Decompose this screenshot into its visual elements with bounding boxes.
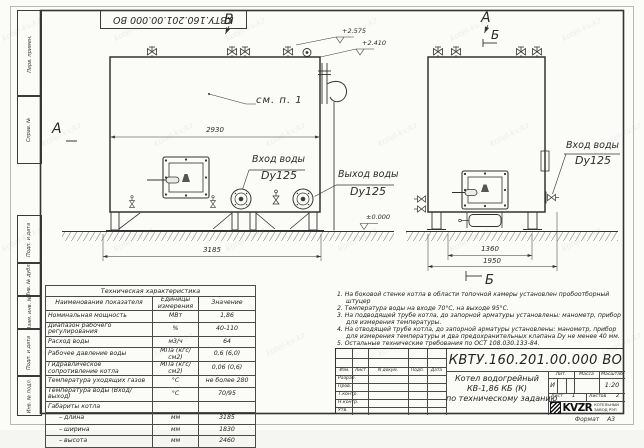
table-row: – высотамм2460: [46, 436, 256, 448]
valve-icon: [414, 206, 426, 212]
tb-doc-number: КВТУ.160.201.00.000 ВО: [446, 354, 625, 367]
elevation-mark-icon: [356, 49, 374, 55]
technical-notes: 1. На боковой стенке котла в области топ…: [337, 291, 628, 348]
elevation-mark-icon: [360, 224, 378, 230]
see-note-ref: см. п. 1: [256, 96, 303, 106]
logo-text: KVZR: [563, 402, 593, 414]
valve-icon: [414, 196, 426, 202]
tb-col-izm: Изм.: [337, 369, 352, 373]
valve-icon: [452, 47, 461, 57]
elevation-2410: +2.410: [362, 40, 386, 47]
outlet-label-front: Выход воды: [338, 170, 399, 180]
table-row: Температура уходящих газов°Сне более 280: [46, 376, 256, 388]
elevation-2575: +2.575: [342, 28, 366, 35]
table-row: Гидравлическое сопротивление котлаМПа (к…: [46, 362, 256, 376]
manufacturer-logo: KVZR КОТЕЛЬНЫЙ ЗАВОД РЭП: [550, 402, 624, 414]
tech-col-header: Единицы измерения: [153, 297, 199, 311]
tb-sheet-value: 1: [572, 394, 575, 399]
valve-icon: [517, 47, 526, 57]
frame-field-inv-podl: Инв. № подл.: [17, 375, 42, 416]
note-item: 3. На подводящей трубе котла, до запорно…: [337, 312, 628, 326]
tb-col-dokum: N докум.: [369, 369, 407, 373]
valve-icon: [548, 194, 560, 200]
view-marker-v: В: [224, 13, 234, 27]
table-row: Диапазон рабочего регулирования%40-110: [46, 322, 256, 336]
note-item: 4. На отводящей трубе котла, до запорной…: [337, 326, 628, 340]
valve-icon: [284, 47, 293, 57]
tech-characteristics-table: Техническая характеристика Наименование …: [45, 285, 256, 448]
tb-col-podp: Подп.: [408, 369, 427, 373]
dim-1360: 1360: [475, 246, 505, 253]
tb-scale-value: 1:20: [599, 382, 625, 389]
tb-scale-label: Масштаб: [599, 373, 625, 378]
format-label: Формат А3: [556, 416, 634, 423]
top-stamp-text: КВТУ.160.201.00.000 ВО: [113, 14, 233, 25]
tech-table-title: Техническая характеристика: [46, 286, 256, 297]
valve-icon: [228, 47, 237, 57]
note-item: 1. На боковой стенке котла в области топ…: [337, 291, 628, 305]
dim-2930: 2930: [195, 127, 235, 134]
tb-mass-label: Масса: [574, 373, 599, 378]
frame-field-podp-data-2: Подп. и дата: [17, 328, 42, 377]
flange-icon: [293, 189, 313, 209]
dim-1950: 1950: [477, 258, 507, 265]
section-marker-b-top: Б: [491, 29, 499, 41]
frame-field-inv-dubl: Инв. № дубл.: [17, 262, 42, 297]
table-row: Габариты котла: [46, 401, 256, 413]
tb-col-list: Лист: [353, 369, 368, 373]
tb-row-prov: Пров.: [338, 385, 351, 390]
tb-product-line2: КВ-1,86 КБ (К): [446, 385, 548, 393]
tb-row-utv: Утв.: [338, 409, 348, 414]
tb-lit-value: И: [548, 382, 557, 389]
inlet-dn-side: Dy125: [575, 155, 611, 166]
logo-sub2: ЗАВОД РЭП: [594, 408, 619, 413]
tb-lit-label: Лит.: [548, 373, 574, 378]
tb-row-razrab: Разраб.: [338, 377, 356, 382]
table-row: Номинальная мощностьМВт1,86: [46, 311, 256, 323]
tb-product-line3: по техническому заданию: [446, 395, 548, 403]
valve-icon: [533, 47, 542, 57]
format-word: Формат: [575, 416, 599, 423]
table-row: Расход водым3/ч64: [46, 336, 256, 348]
note-item: 5. Остальные технические требования по О…: [337, 340, 628, 347]
outlet-dn-front: Dy125: [350, 186, 386, 197]
section-marker-b-bottom: Б: [485, 274, 494, 287]
tb-row-nkontr: Н.контр.: [338, 401, 359, 406]
inlet-label-side: Вход воды: [566, 141, 619, 151]
table-row: Температура воды (Вход/выход)°С70/95: [46, 387, 256, 401]
frame-field-perv-primen: Перв. примен.: [17, 10, 42, 97]
elevation-mark-icon: [336, 37, 354, 43]
boiler-front-view: [62, 26, 394, 261]
tb-sheets-value: 2: [616, 394, 619, 399]
tech-col-header: Значение: [199, 297, 256, 311]
inlet-label-front: Вход воды: [252, 155, 305, 165]
drawing-sheet: КВТУ.160.201.00.000 ВО Перв. примен. Спр…: [0, 0, 644, 430]
logo-stripes-icon: [550, 402, 561, 414]
boiler-side-view: [406, 25, 620, 281]
frame-field-sprav-no: Справ. №: [17, 95, 42, 164]
valve-icon: [434, 47, 443, 57]
valve-icon: [148, 47, 157, 57]
drain-valve-icon: [210, 196, 215, 208]
valve-icon: [241, 47, 250, 57]
tech-col-header: Наименование показателя: [46, 297, 153, 311]
table-row: Рабочее давление водыМПа (кгс/см2)0,6 (6…: [46, 348, 256, 362]
frame-field-podp-data-1: Подп. и дата: [17, 215, 42, 264]
inlet-dn-front: Dy125: [261, 170, 297, 181]
format-value: А3: [607, 416, 615, 423]
tb-product-line1: Котел водогрейный: [446, 375, 548, 383]
tb-sheets-label: Листов: [589, 395, 606, 400]
tb-sheet-label: Лист: [551, 395, 563, 400]
section-marker-a-front: А: [52, 122, 62, 136]
dim-3185: 3185: [192, 247, 232, 254]
title-block: Изм. Лист N докум. Подп. Дата Разраб. Пр…: [335, 348, 624, 414]
frame-field-vzam-inv: Взам. инв. №: [17, 295, 42, 330]
view-marker-a-side: А: [481, 11, 491, 25]
drain-valve-icon: [273, 190, 279, 204]
tb-row-tkontr: Т.контр.: [338, 393, 358, 398]
drain-valve-icon: [129, 196, 134, 208]
flange-icon: [231, 189, 251, 209]
table-row: – длинамм3185: [46, 413, 256, 425]
tb-col-data: Дата: [427, 369, 446, 373]
elevation-zero: ±0.000: [366, 214, 390, 221]
